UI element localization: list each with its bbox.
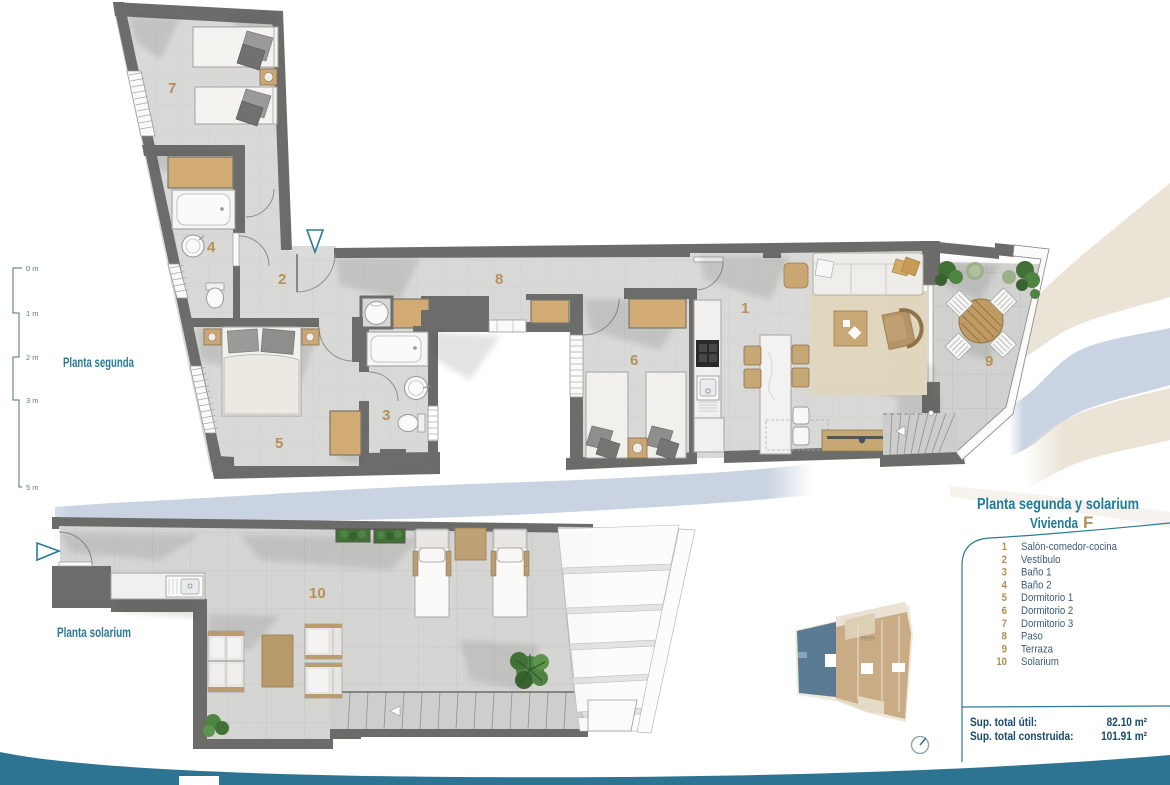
svg-text:1: 1 — [1002, 541, 1007, 553]
svg-text:101.91 m²: 101.91 m² — [1101, 730, 1147, 743]
svg-text:Sup. total útil:: Sup. total útil: — [970, 716, 1037, 729]
svg-text:9: 9 — [1002, 644, 1007, 656]
svg-text:Terraza: Terraza — [1021, 644, 1053, 656]
svg-text:7: 7 — [1002, 618, 1007, 630]
svg-text:8: 8 — [1002, 631, 1007, 643]
svg-text:Salón-comedor-cocina: Salón-comedor-cocina — [1021, 541, 1117, 553]
svg-text:3: 3 — [1002, 567, 1007, 579]
svg-text:Vestíbulo: Vestíbulo — [1021, 554, 1061, 566]
svg-text:82.10 m²: 82.10 m² — [1107, 716, 1148, 729]
svg-text:Vivienda: Vivienda — [1030, 515, 1079, 532]
svg-text:6: 6 — [1002, 605, 1007, 617]
svg-text:Baño 2: Baño 2 — [1021, 580, 1052, 592]
svg-text:F: F — [1083, 513, 1093, 532]
svg-text:Dormitorio 3: Dormitorio 3 — [1021, 618, 1073, 630]
svg-text:0 m: 0 m — [26, 264, 39, 273]
svg-text:Planta segunda: Planta segunda — [63, 355, 134, 370]
svg-text:Dormitorio 2: Dormitorio 2 — [1021, 605, 1073, 617]
svg-text:Planta segunda y solarium: Planta segunda y solarium — [977, 496, 1139, 513]
svg-text:5: 5 — [1002, 593, 1007, 605]
svg-text:3 m: 3 m — [26, 396, 39, 405]
svg-text:1 m: 1 m — [26, 309, 39, 318]
svg-text:10: 10 — [996, 657, 1007, 669]
svg-text:4: 4 — [1002, 580, 1007, 592]
svg-text:Sup. total construida:: Sup. total construida: — [970, 730, 1074, 743]
svg-text:2: 2 — [1002, 554, 1007, 566]
svg-text:Planta solarium: Planta solarium — [57, 625, 131, 640]
svg-text:Solarium: Solarium — [1021, 657, 1059, 669]
svg-text:5 m: 5 m — [26, 483, 39, 492]
svg-text:Paso: Paso — [1021, 631, 1043, 643]
svg-text:Dormitorio 1: Dormitorio 1 — [1021, 593, 1073, 605]
svg-text:2 m: 2 m — [26, 353, 39, 362]
svg-text:Baño 1: Baño 1 — [1021, 567, 1052, 579]
